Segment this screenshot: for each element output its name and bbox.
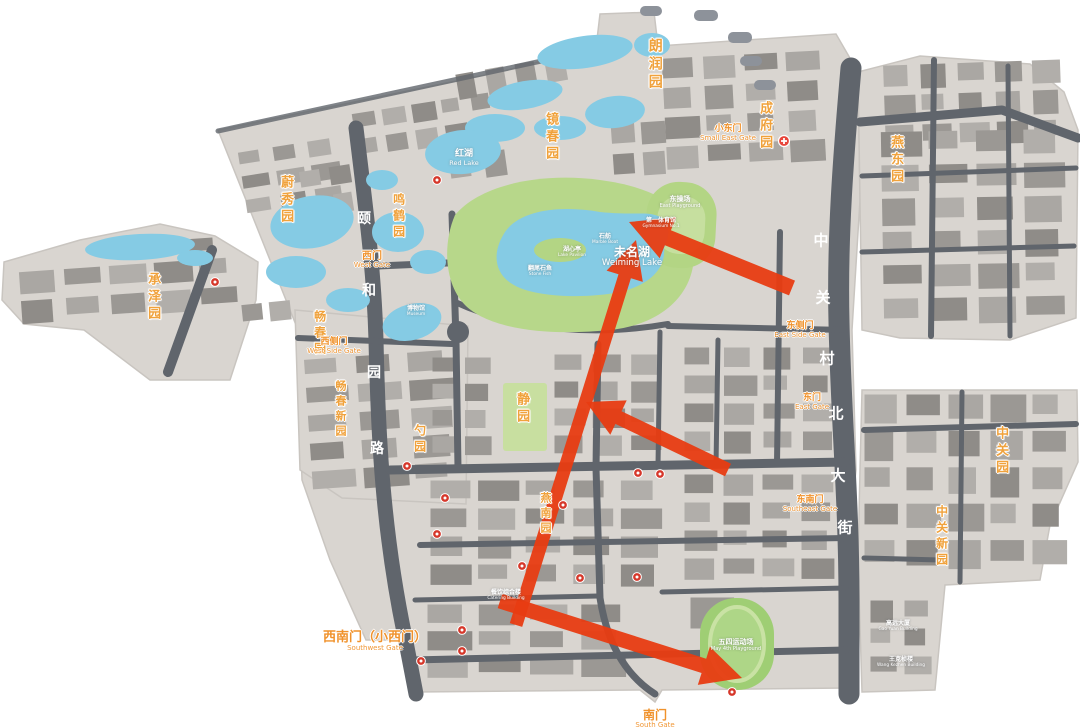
poi-marker-dot	[562, 504, 565, 507]
poi-marker-dot	[406, 465, 409, 468]
poi-marker-dot	[659, 473, 662, 476]
poi-marker-dot	[420, 660, 423, 663]
poi-marker-dot	[521, 565, 524, 568]
campus-map[interactable]: 朗润园镜春园蔚秀园鸣鹤园承泽园畅春园畅春新园勺园静园燕南园成府园燕东园中关园中关…	[0, 0, 1080, 727]
map-canvas	[0, 0, 1080, 727]
poi-marker-dot	[461, 629, 464, 632]
jingyuan-lawn	[503, 383, 547, 451]
poi-marker-dot	[579, 577, 582, 580]
poi-marker-dot	[214, 281, 217, 284]
poi-marker-dot	[436, 179, 439, 182]
zhongguancun-north-street	[839, 68, 851, 694]
poi-marker-dot	[461, 650, 464, 653]
poi-marker-dot	[731, 691, 734, 694]
poi-marker-dot	[637, 472, 640, 475]
poi-marker-dot	[636, 576, 639, 579]
poi-marker-dot	[444, 497, 447, 500]
poi-marker-dot	[436, 533, 439, 536]
